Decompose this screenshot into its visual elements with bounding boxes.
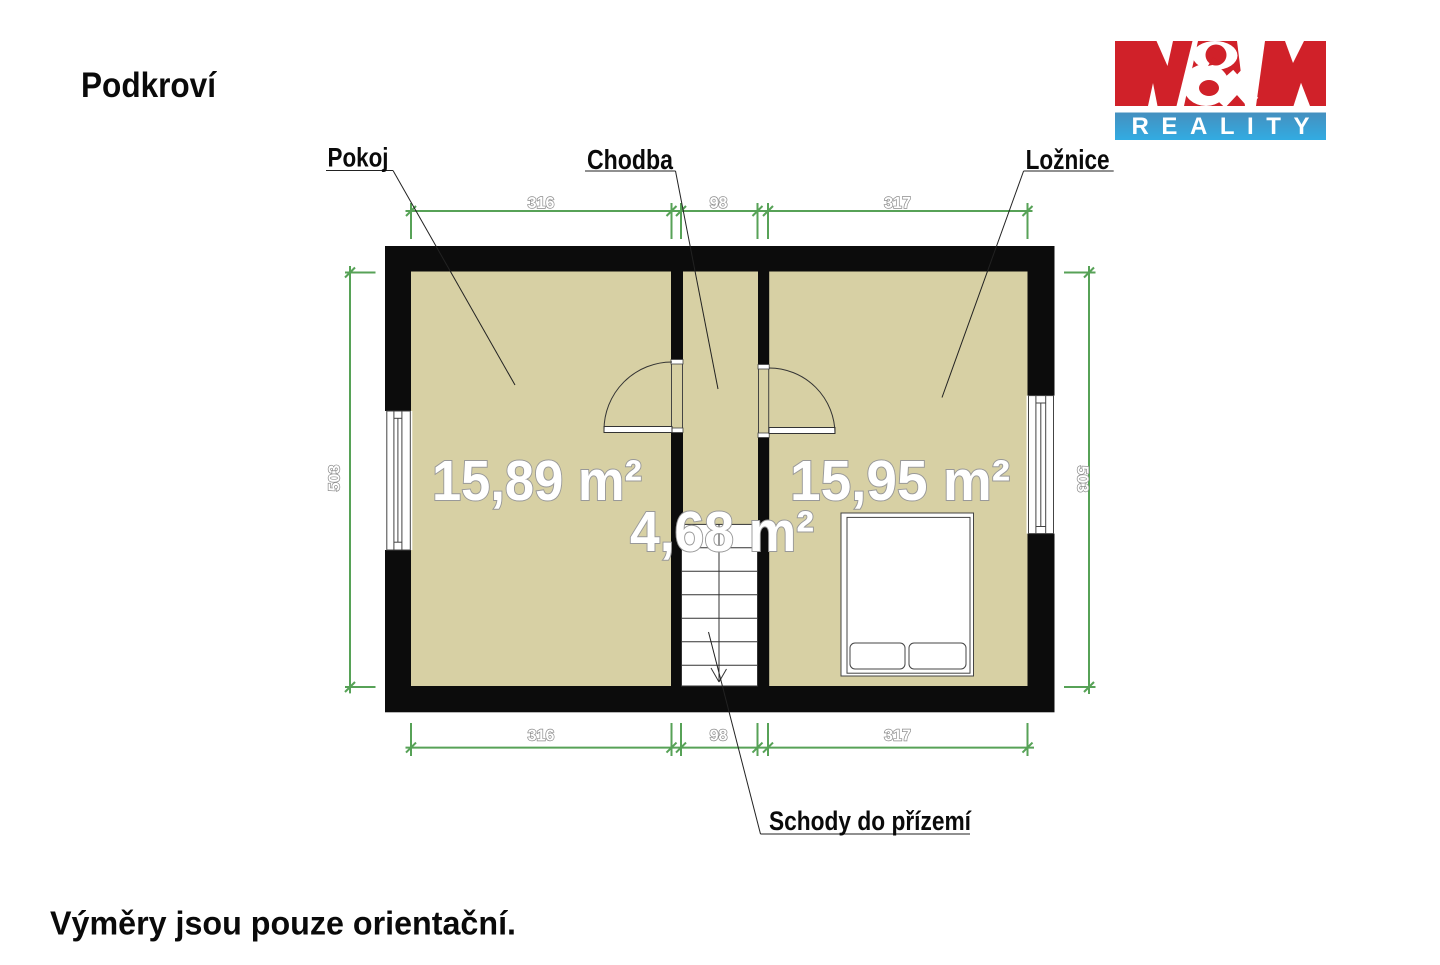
svg-text:Pokoj: Pokoj [328, 143, 389, 173]
svg-text:Výměry jsou pouze orientační.: Výměry jsou pouze orientační. [50, 905, 516, 942]
svg-text:317: 317 [884, 195, 911, 212]
svg-text:98: 98 [710, 195, 728, 212]
svg-text:503: 503 [327, 465, 344, 492]
svg-text:316: 316 [528, 728, 555, 745]
svg-text:317: 317 [884, 728, 911, 745]
svg-text:15,95 m²: 15,95 m² [790, 449, 1010, 513]
svg-text:Schody do přízemí: Schody do přízemí [769, 806, 972, 836]
svg-text:98: 98 [710, 728, 728, 745]
svg-text:316: 316 [528, 195, 555, 212]
svg-text:4,68 m²: 4,68 m² [630, 500, 814, 564]
svg-text:Podkroví: Podkroví [81, 66, 217, 105]
svg-text:503: 503 [1074, 466, 1091, 493]
svg-text:Ložnice: Ložnice [1026, 144, 1110, 175]
svg-text:Chodba: Chodba [587, 144, 673, 175]
svg-text:15,89 m²: 15,89 m² [432, 449, 642, 513]
